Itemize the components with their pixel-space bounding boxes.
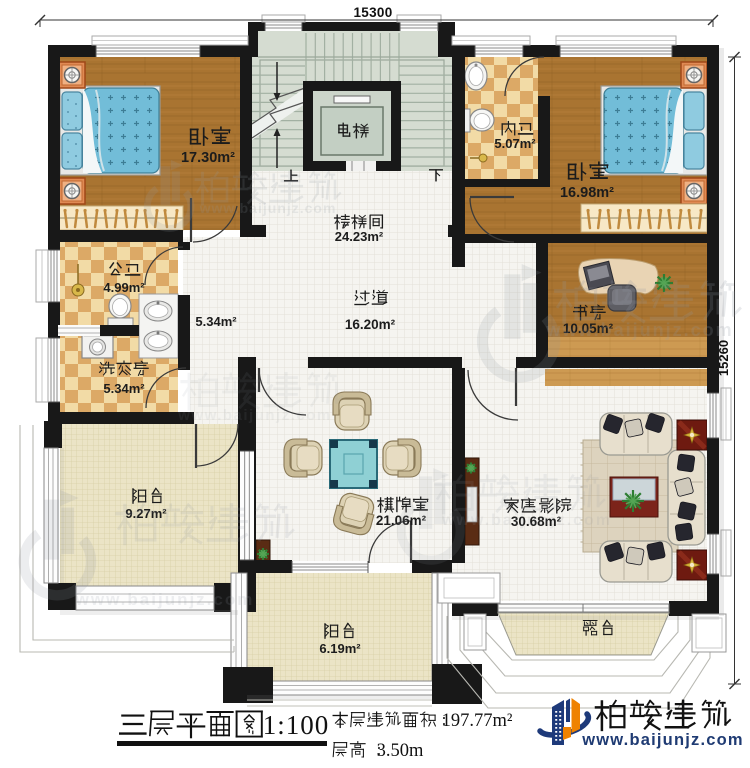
svg-text:5.34m²: 5.34m² <box>103 381 145 396</box>
svg-text:17.30m²: 17.30m² <box>181 150 235 166</box>
svg-text:5.07m²: 5.07m² <box>494 136 536 151</box>
svg-text:15300: 15300 <box>353 5 392 20</box>
svg-text:www.baijunjz.com: www.baijunjz.com <box>545 320 733 340</box>
svg-text:www.baijunjz.com: www.baijunjz.com <box>581 731 744 749</box>
svg-text:1:100: 1:100 <box>263 710 330 740</box>
svg-text:6.19m²: 6.19m² <box>319 641 361 656</box>
svg-text:16.20m²: 16.20m² <box>345 317 396 332</box>
svg-text:24.23m²: 24.23m² <box>335 229 384 244</box>
svg-text:5.34m²: 5.34m² <box>195 314 237 329</box>
svg-text:www.baijunjz.com: www.baijunjz.com <box>177 407 331 424</box>
svg-text:4.99m²: 4.99m² <box>103 280 145 295</box>
svg-text:www.baijunjz.com: www.baijunjz.com <box>199 200 337 216</box>
svg-text:197.77m²: 197.77m² <box>442 711 513 731</box>
svg-text:www.baijunjz.com: www.baijunjz.com <box>75 590 255 609</box>
svg-text:16.98m²: 16.98m² <box>560 185 614 201</box>
svg-text:3.50m: 3.50m <box>377 741 424 761</box>
svg-text:www.baijunjz.com: www.baijunjz.com <box>441 512 612 529</box>
svg-text:15260: 15260 <box>716 340 731 376</box>
